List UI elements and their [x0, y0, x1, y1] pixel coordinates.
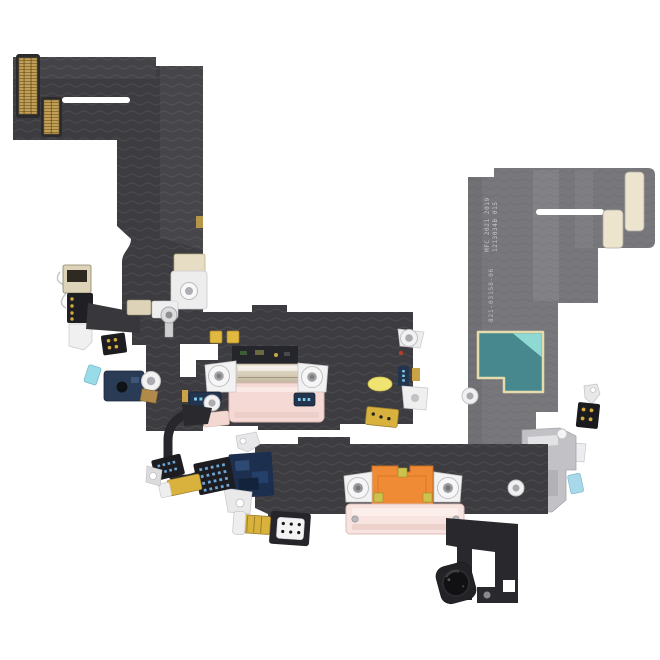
microphone-assembly	[232, 508, 311, 546]
contact-khaki	[398, 468, 407, 477]
bracket-dimple	[557, 429, 567, 439]
mic-contact	[70, 297, 73, 300]
port-rear-shade	[352, 524, 458, 530]
board-connector-small	[41, 97, 62, 137]
post-hole	[166, 312, 173, 319]
screw-hole-center	[445, 485, 450, 490]
red-component	[399, 351, 403, 355]
connector-cream-small	[127, 300, 151, 315]
connector-body	[576, 402, 600, 429]
ring-hole-1	[147, 377, 155, 385]
bracket-dimple	[411, 394, 419, 402]
part-number-text: 821-03158-06	[488, 268, 495, 322]
gold-pin-strip	[182, 390, 188, 402]
tab-body	[84, 364, 102, 385]
port-rear-highlight	[352, 508, 458, 516]
gold-trace	[196, 216, 203, 228]
bracket-hole	[467, 393, 474, 400]
mini-gold-pad	[412, 368, 420, 381]
stiffener-pad-2	[603, 210, 623, 248]
mic-membrane	[276, 517, 304, 540]
pcb-dot	[274, 353, 278, 357]
bronze-contact	[140, 389, 158, 404]
rear-screw-tab-left	[344, 472, 372, 502]
tab-cyan-rear	[567, 473, 584, 494]
screw-hole-center	[355, 485, 360, 490]
flex-edge-shade	[468, 177, 482, 446]
tab-body	[567, 473, 584, 494]
module-navy	[104, 371, 144, 401]
connector-keyline	[24, 58, 25, 114]
branch-wing-hole	[150, 473, 157, 480]
microphone-gold	[365, 406, 399, 427]
patch-shade	[238, 478, 259, 491]
connector-pins	[19, 58, 37, 114]
connector-keyline	[31, 58, 32, 114]
mic-contact	[70, 304, 73, 307]
pcb-chip	[284, 352, 290, 356]
pcb-chip	[240, 351, 247, 355]
bracket-seam	[238, 377, 298, 378]
bracket-hole	[405, 334, 413, 342]
connector-gold-dots	[101, 332, 128, 355]
stamp-text-line2: 1213034B 015	[492, 201, 499, 252]
screw-hole-center	[217, 374, 222, 379]
stiffener-pad-1	[625, 172, 644, 231]
patch-speck	[235, 460, 250, 471]
clip-hole	[236, 499, 244, 507]
barrel-cap-white	[232, 511, 246, 535]
bracket-hole	[185, 287, 193, 295]
flex-cable-illustration: MFC 2021 2019 1213034B 015 821-03158-06	[0, 0, 660, 660]
rear-screw-tab-right	[434, 472, 462, 502]
relief-slit-upper	[62, 97, 130, 103]
port-housing-shade	[234, 412, 319, 418]
contact-khaki	[374, 493, 383, 502]
connector-gold-dots-rear	[576, 402, 600, 429]
stamp-text-line1: MFC 2021 2019	[484, 197, 491, 252]
metal-hook	[584, 384, 600, 404]
barrel-branch	[434, 518, 518, 606]
antenna-pad-yellow	[368, 377, 392, 391]
connector-slot	[67, 270, 87, 282]
contact-khaki	[423, 493, 432, 502]
screw-tab-left	[205, 361, 236, 392]
contact-pad	[210, 331, 222, 343]
foot-hole	[484, 592, 491, 599]
tab-cyan	[84, 364, 102, 385]
connector-body	[101, 332, 128, 355]
screw-tab-right	[298, 363, 328, 392]
hook-hole	[591, 388, 596, 393]
module-chip	[131, 377, 139, 383]
branch-cutout	[503, 580, 515, 592]
clip-hole	[240, 438, 246, 444]
port-screw	[352, 516, 358, 522]
relief-slit-rear	[536, 209, 604, 215]
ring-bracket-teal-corner	[462, 388, 478, 404]
mic-contact	[70, 311, 73, 314]
board-connector-large	[16, 54, 40, 118]
connector-keyline	[51, 100, 52, 134]
ring-hole-lower	[513, 485, 520, 492]
upper-flex-cable-front	[13, 54, 428, 431]
mic-contact	[70, 317, 73, 320]
flex-panel-light	[533, 170, 559, 301]
bracket-highlight	[238, 366, 298, 371]
screw-hole-center	[310, 375, 315, 380]
port-shield-pcb	[232, 346, 298, 365]
bronze-body	[140, 389, 158, 404]
product-photo: MFC 2021 2019 1213034B 015 821-03158-06	[0, 0, 660, 660]
module-lens	[117, 382, 128, 393]
btb-connector-blue-right	[294, 393, 315, 406]
ring-hole-2	[208, 399, 215, 406]
pcb-chip	[255, 350, 264, 355]
contact-pad	[227, 331, 239, 343]
